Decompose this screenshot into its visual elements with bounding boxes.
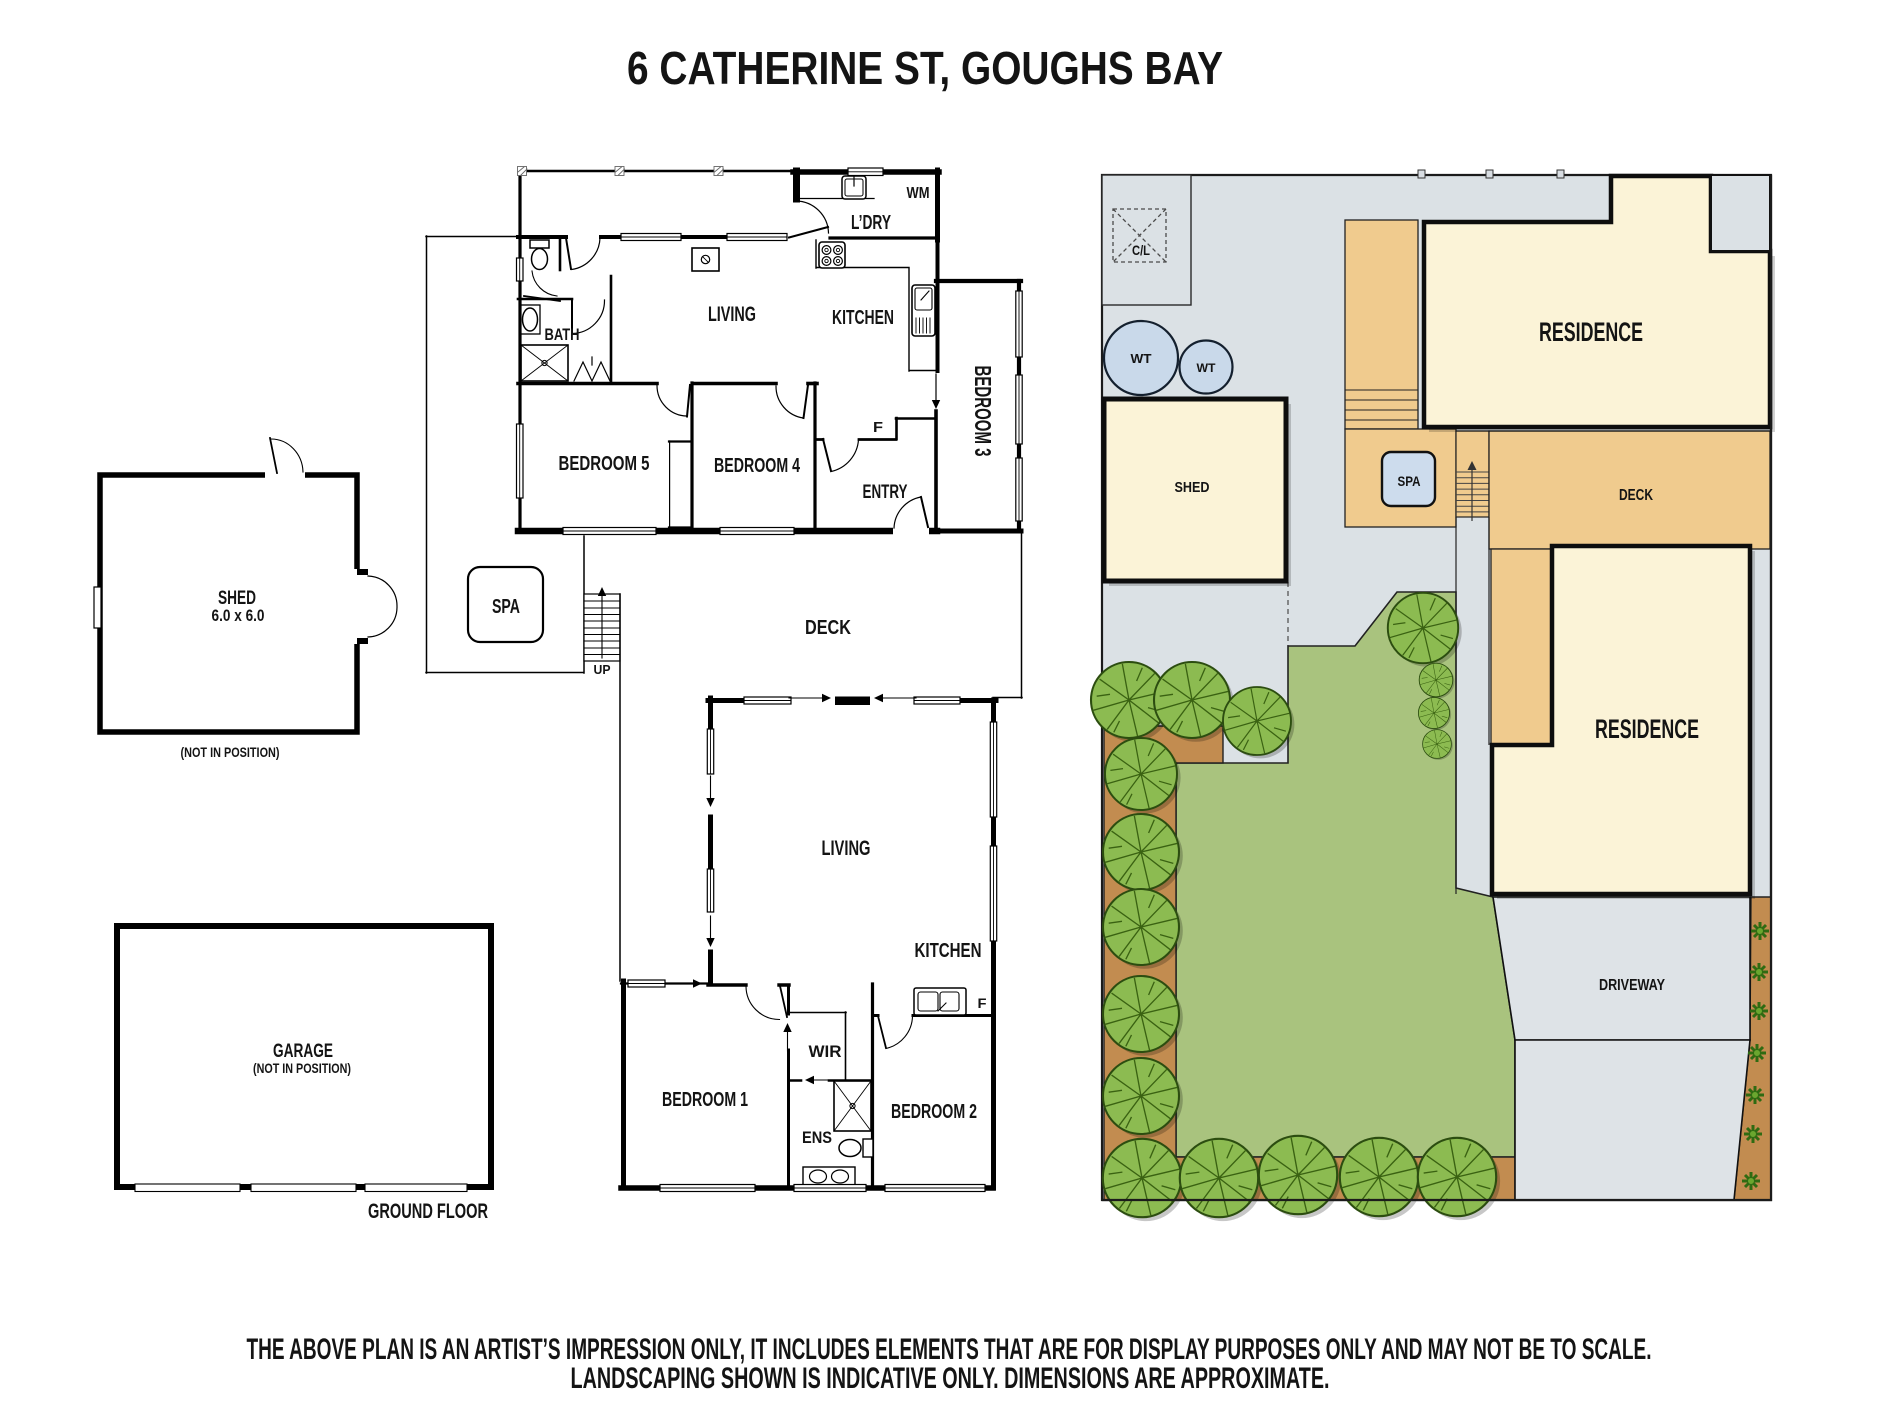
svg-text:BEDROOM 4: BEDROOM 4 bbox=[714, 455, 801, 477]
svg-text:KITCHEN: KITCHEN bbox=[915, 940, 982, 962]
svg-text:ENTRY: ENTRY bbox=[863, 482, 908, 503]
svg-text:DECK: DECK bbox=[805, 617, 851, 639]
svg-text:LIVING: LIVING bbox=[708, 303, 756, 326]
svg-text:UP: UP bbox=[594, 662, 611, 677]
svg-text:C/L: C/L bbox=[1132, 242, 1150, 258]
svg-text:GROUND FLOOR: GROUND FLOOR bbox=[368, 1200, 488, 1223]
svg-text:BEDROOM 3: BEDROOM 3 bbox=[970, 366, 996, 457]
svg-text:WM: WM bbox=[907, 185, 930, 202]
svg-text:ENS: ENS bbox=[802, 1128, 832, 1147]
svg-text:BATH: BATH bbox=[545, 325, 580, 344]
svg-text:LANDSCAPING SHOWN IS INDICATIV: LANDSCAPING SHOWN IS INDICATIVE ONLY. DI… bbox=[571, 1362, 1330, 1395]
svg-text:BEDROOM 2: BEDROOM 2 bbox=[891, 1101, 977, 1123]
svg-text:SPA: SPA bbox=[492, 596, 520, 618]
svg-text:(NOT IN POSITION): (NOT IN POSITION) bbox=[253, 1060, 351, 1076]
svg-text:WT: WT bbox=[1131, 351, 1152, 366]
svg-text:RESIDENCE: RESIDENCE bbox=[1595, 714, 1699, 744]
svg-text:WIR: WIR bbox=[809, 1042, 842, 1061]
svg-text:SPA: SPA bbox=[1398, 473, 1421, 489]
svg-text:RESIDENCE: RESIDENCE bbox=[1539, 317, 1643, 347]
svg-text:F: F bbox=[873, 419, 883, 436]
svg-text:F: F bbox=[978, 995, 987, 1011]
svg-text:LIVING: LIVING bbox=[822, 837, 871, 860]
svg-text:6 CATHERINE ST, GOUGHS BAY: 6 CATHERINE ST, GOUGHS BAY bbox=[627, 42, 1223, 94]
svg-text:GARAGE: GARAGE bbox=[273, 1041, 333, 1062]
svg-text:SHED: SHED bbox=[1175, 479, 1210, 496]
svg-text:(NOT IN POSITION): (NOT IN POSITION) bbox=[181, 744, 280, 760]
svg-text:DECK: DECK bbox=[1619, 487, 1653, 504]
svg-text:BEDROOM 5: BEDROOM 5 bbox=[559, 453, 650, 475]
svg-text:6.0 x 6.0: 6.0 x 6.0 bbox=[212, 606, 265, 625]
svg-text:KITCHEN: KITCHEN bbox=[832, 307, 894, 329]
svg-text:WT: WT bbox=[1197, 361, 1217, 375]
svg-text:DRIVEWAY: DRIVEWAY bbox=[1599, 977, 1665, 994]
svg-text:BEDROOM 1: BEDROOM 1 bbox=[662, 1089, 748, 1111]
svg-text:L’DRY: L’DRY bbox=[851, 212, 891, 234]
